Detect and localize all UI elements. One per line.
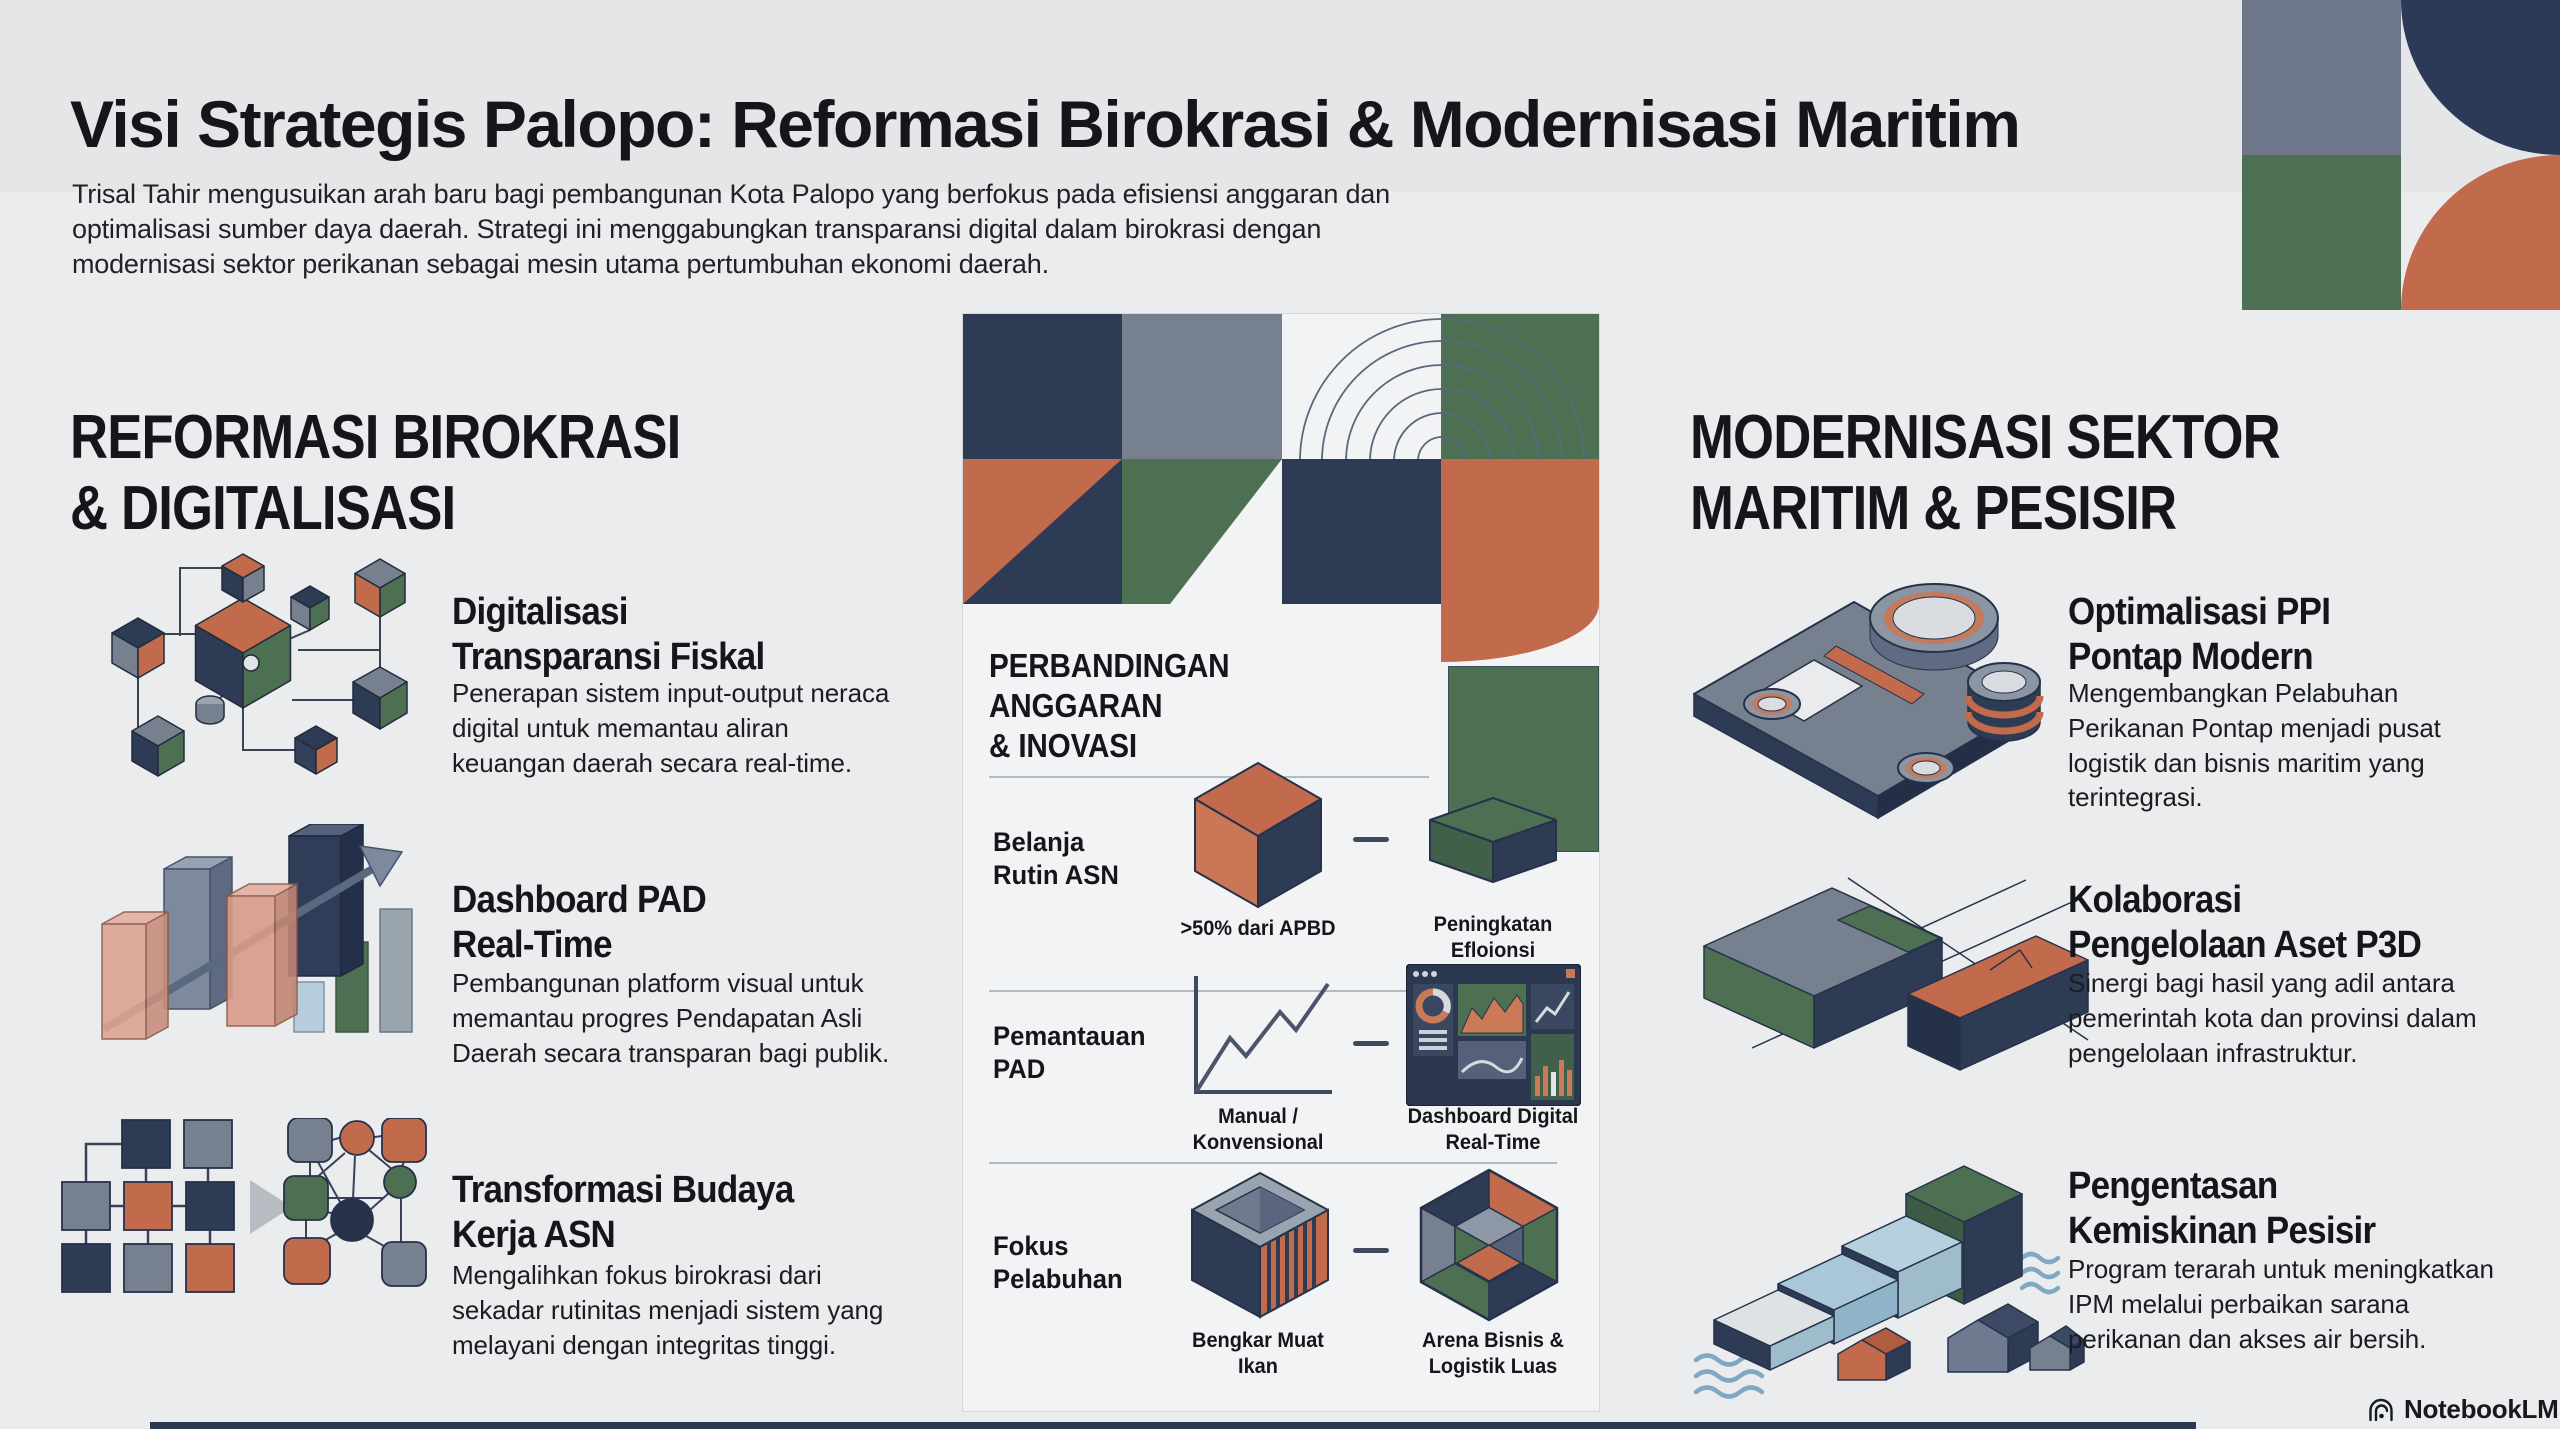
network-cubes-icon — [58, 538, 436, 796]
decor-slate-square — [2242, 0, 2401, 155]
port-machinery-icon — [1686, 526, 2044, 826]
growth-bars-arrow-icon — [84, 824, 416, 1059]
item-description: Program terarah untuk meningkatkan IPM m… — [2068, 1252, 2548, 1356]
list-item — [84, 824, 416, 1059]
collage-navy-square — [963, 314, 1122, 459]
collage-navy-triangle — [963, 459, 1122, 604]
brand-footer: NotebookLM — [2366, 1394, 2558, 1425]
item-title: Transformasi Budaya Kerja ASN — [452, 1168, 794, 1258]
dashboard-icon — [1406, 964, 1581, 1106]
row-label: Pemantauan PAD — [993, 1020, 1146, 1086]
list-item — [1686, 526, 2044, 826]
list-item — [60, 1118, 432, 1363]
dash-separator — [1353, 1248, 1389, 1253]
list-item — [1686, 1108, 2086, 1408]
decor-terracotta-quarter-circle — [2401, 155, 2560, 310]
row-label: Belanja Rutin ASN — [993, 826, 1119, 892]
collage-terracotta-round-tab — [1441, 604, 1599, 662]
dash-separator — [1353, 1041, 1389, 1046]
item-title: Digitalisasi Transparansi Fiskal — [452, 590, 764, 680]
decor-green-square — [2242, 155, 2401, 310]
icon-caption: Dashboard Digital Real-Time — [1389, 1104, 1598, 1156]
icon-caption: Bengkar Muat Ikan — [1154, 1328, 1363, 1380]
iso-slab-icon — [1426, 794, 1561, 892]
land-parcels-icon — [1690, 850, 2090, 1120]
infographic-canvas: Visi Strategis Palopo: Reformasi Birokra… — [0, 0, 2560, 1429]
bottom-accent-bar — [150, 1422, 2196, 1429]
item-description: Mengembangkan Pelabuhan Perikanan Pontap… — [2068, 676, 2548, 815]
collage-terracotta-square — [1441, 459, 1599, 604]
collage-navy-square-2 — [1282, 459, 1441, 604]
cargo-container-icon — [1186, 1167, 1334, 1322]
collage-terracotta-triangle-square — [963, 459, 1122, 604]
collage-white-wedge — [1122, 459, 1282, 604]
brand-label: NotebookLM — [2404, 1394, 2558, 1425]
corner-decor — [2242, 0, 2560, 310]
item-description: Mengalihkan fokus birokrasi dari sekadar… — [452, 1258, 932, 1362]
org-chart-to-network-icon — [60, 1118, 432, 1363]
icon-caption: Arena Bisnis & Logistik Luas — [1389, 1328, 1598, 1380]
item-title: Pengentasan Kemiskinan Pesisir — [2068, 1164, 2375, 1254]
concentric-arcs-decor — [1282, 314, 1599, 459]
notebooklm-logo-icon — [2366, 1395, 2396, 1425]
left-section-heading: REFORMASI BIROKRASI & DIGITALISASI — [70, 403, 680, 543]
iso-cube-icon — [1191, 759, 1326, 909]
page-subtitle: Trisal Tahir mengusuikan arah baru bagi … — [72, 177, 1572, 282]
icon-caption: >50% dari APBD — [1154, 916, 1363, 942]
line-chart-icon — [1186, 974, 1334, 1102]
item-title: Kolaborasi Pengelolaan Aset P3D — [2068, 878, 2421, 968]
item-description: Sinergi bagi hasil yang adil antara peme… — [2068, 966, 2548, 1070]
collage-slate-square — [1122, 314, 1282, 459]
item-title: Dashboard PAD Real-Time — [452, 878, 706, 968]
page-title: Visi Strategis Palopo: Reformasi Birokra… — [70, 90, 2019, 159]
coastal-steps-houses-icon — [1686, 1108, 2086, 1408]
center-panel: PERBANDINGAN ANGGARAN & INOVASI Belanja … — [962, 313, 1600, 1412]
icon-caption: Manual / Konvensional — [1154, 1104, 1363, 1156]
list-item — [58, 538, 436, 796]
item-description: Penerapan sistem input-output neraca dig… — [452, 676, 932, 780]
row-label: Fokus Pelabuhan — [993, 1230, 1123, 1296]
iso-hexagon-icon — [1413, 1164, 1565, 1326]
center-panel-heading: PERBANDINGAN ANGGARAN & INOVASI — [989, 646, 1229, 765]
item-title: Optimalisasi PPI Pontap Modern — [2068, 590, 2330, 680]
dash-separator — [1353, 837, 1389, 842]
decor-navy-quarter-circle — [2401, 0, 2560, 155]
item-description: Pembangunan platform visual untuk memant… — [452, 966, 932, 1070]
list-item — [1690, 850, 2090, 1120]
right-section-heading: MODERNISASI SEKTOR MARITIM & PESISIR — [1690, 403, 2280, 543]
collage-green-triangle-square — [1122, 459, 1282, 604]
icon-caption: Peningkatan Efloionsi — [1389, 912, 1598, 964]
